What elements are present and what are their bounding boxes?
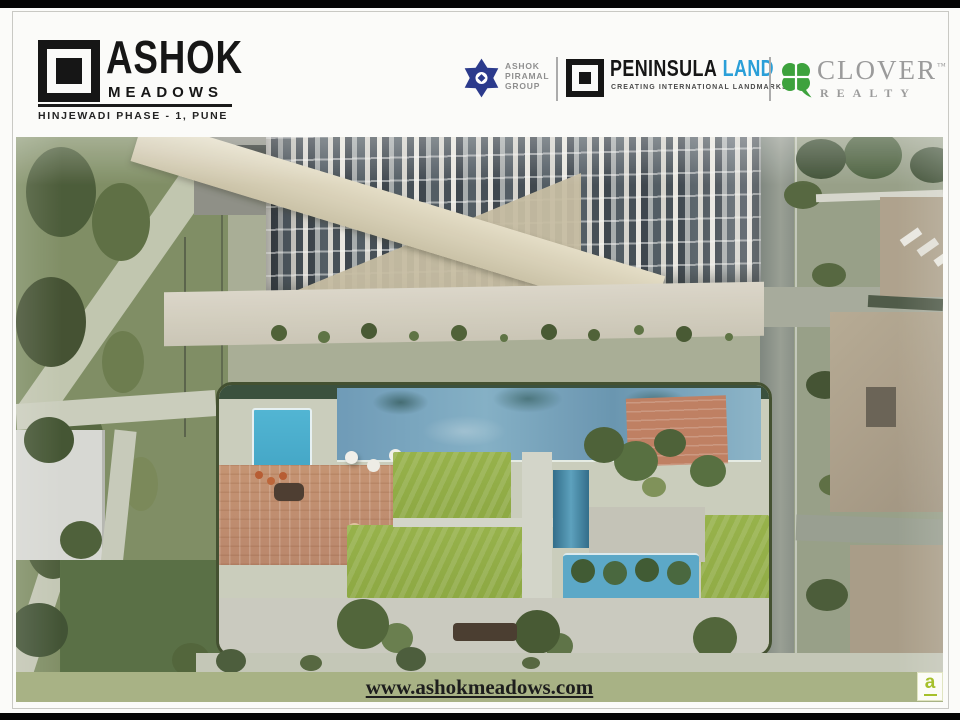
shrub-row xyxy=(271,325,287,341)
ashok-piramal-text: ASHOK PIRAMAL GROUP xyxy=(505,61,549,91)
amenity-podium xyxy=(216,382,772,657)
lap-pool xyxy=(553,470,589,548)
road xyxy=(796,514,943,545)
watermark-badge[interactable]: a xyxy=(917,672,943,701)
apg-line3: GROUP xyxy=(505,81,549,91)
clover-icon xyxy=(778,59,814,99)
driveway xyxy=(164,282,764,346)
lawn xyxy=(393,452,511,520)
footer-band: www.ashokmeadows.com xyxy=(16,672,943,702)
brand-subname: MEADOWS xyxy=(108,84,223,101)
trees xyxy=(584,427,624,463)
logo-separator xyxy=(556,57,558,101)
brand-name: ASHOK xyxy=(106,34,243,80)
pond-bushes xyxy=(571,559,595,583)
clover-realty: REALTY xyxy=(820,86,917,101)
rooftop xyxy=(880,197,943,297)
peninsula-word: PENINSULA xyxy=(610,55,717,81)
website-link[interactable]: www.ashokmeadows.com xyxy=(16,672,943,702)
apg-line2: PIRAMAL xyxy=(505,71,549,81)
trees xyxy=(26,147,96,237)
ashok-meadows-logo-icon xyxy=(38,40,100,102)
aerial-photo xyxy=(16,137,943,672)
clover-tm: ™ xyxy=(937,61,946,71)
ashok-piramal-star-icon xyxy=(463,57,500,99)
terracotta-paving xyxy=(626,395,728,466)
lawn xyxy=(347,525,525,598)
road-edge xyxy=(795,137,797,672)
slide: ASHOK MEADOWS HINJEWADI PHASE - 1, PUNE … xyxy=(0,8,960,713)
walkway xyxy=(393,518,553,527)
peninsula-tagline: CREATING INTERNATIONAL LANDMARKS xyxy=(611,84,788,91)
umbrellas-white xyxy=(345,451,358,464)
trees xyxy=(337,599,389,649)
watermark-subtext-bar xyxy=(924,694,937,696)
trees xyxy=(216,649,246,672)
trees xyxy=(24,417,74,463)
watermark-letter: a xyxy=(918,673,942,693)
pool-chairs xyxy=(255,471,263,479)
peninsula-inner-square xyxy=(579,72,591,84)
peninsula-square-icon xyxy=(566,59,604,97)
logo-separator xyxy=(769,57,771,101)
lounger xyxy=(274,483,304,501)
benches xyxy=(453,623,517,641)
logo-inner-square xyxy=(56,58,82,84)
trees xyxy=(796,139,846,179)
clover-word: CLOVER xyxy=(817,55,937,85)
clover-name: CLOVER™ xyxy=(817,55,946,86)
peninsula-name: PENINSULALAND xyxy=(610,55,774,82)
brand-location: HINJEWADI PHASE - 1, PUNE xyxy=(38,110,228,122)
video-frame: ASHOK MEADOWS HINJEWADI PHASE - 1, PUNE … xyxy=(0,0,960,720)
walkway xyxy=(196,653,943,672)
apg-line1: ASHOK xyxy=(505,61,549,71)
peninsula-land-word: LAND xyxy=(723,55,774,81)
rooftop-shadow xyxy=(866,387,896,427)
brand-rule xyxy=(38,104,232,107)
